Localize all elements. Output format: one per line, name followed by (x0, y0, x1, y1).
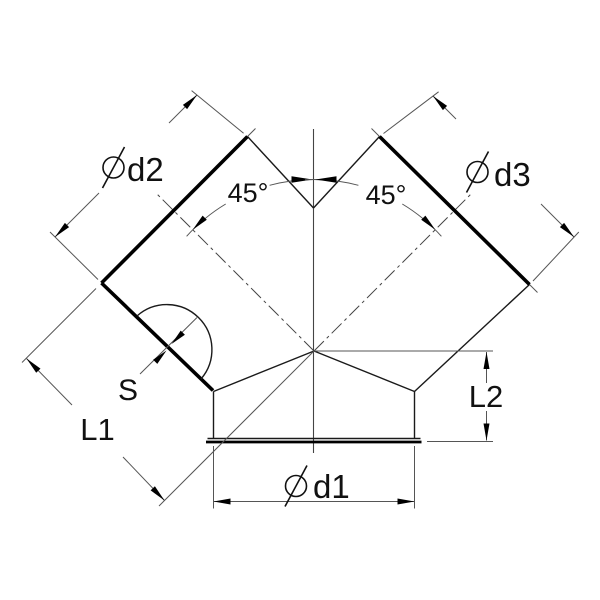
l2-arrow-bottom (484, 424, 490, 441)
l1-extension-top (22, 289, 96, 363)
diameter-slash (285, 466, 307, 507)
fitting-outline-thick (102, 137, 530, 443)
d3-arrow-bottom (560, 223, 574, 237)
technical-drawing-page: d2 d3 45° 45° S (0, 0, 600, 600)
l2-arrow-top (484, 352, 490, 369)
right-edge-overshoot-top (372, 129, 380, 137)
right-angle-arrow-top (316, 176, 337, 182)
dimension-s: S (118, 305, 212, 407)
dimension-angle-left: 45° (187, 176, 323, 236)
right-branch-centerline (314, 193, 472, 351)
dimension-l1: L1 (22, 289, 314, 507)
d2-extension-bottom (50, 232, 98, 280)
right-angle-arrow-bottom (421, 216, 435, 230)
right-angle-label: 45° (366, 180, 407, 210)
right-branch-outer-wall (415, 285, 530, 392)
left-branch-end-edge (102, 137, 248, 284)
right-edge-overshoot-bottom (530, 285, 538, 293)
s-arrow-upper (172, 331, 185, 344)
diameter-slash (467, 152, 489, 193)
left-branch-centerline (156, 193, 314, 351)
dimension-d2: d2 (50, 91, 244, 280)
s-label: S (118, 374, 138, 407)
d1-arrow-left (214, 499, 231, 505)
d3-label: d3 (494, 156, 531, 193)
d2-arrow-bottom (55, 223, 69, 237)
dimension-l2: L2 (314, 351, 503, 442)
left-angle-arrow-bottom (193, 216, 207, 230)
dimension-angle-right: 45° (305, 176, 441, 236)
centerlines (156, 129, 472, 453)
d2-label: d2 (127, 151, 164, 188)
l1-extension-bottom (159, 351, 314, 506)
d2-extension-top (192, 91, 244, 134)
d3-arrow-top (433, 96, 447, 110)
d1-arrow-right (398, 499, 415, 505)
left-transition-edge (214, 351, 315, 392)
l2-label: L2 (469, 379, 503, 414)
right-transition-edge (314, 351, 415, 392)
d2-arrow-top (183, 95, 197, 109)
s-arrow-lower (153, 351, 166, 364)
wye-fitting-drawing: d2 d3 45° 45° S (0, 0, 600, 600)
diameter-symbol-d1 (285, 466, 307, 507)
diameter-symbol-d2 (103, 147, 125, 188)
dimension-d1: d1 (214, 446, 415, 509)
d1-label: d1 (313, 468, 350, 505)
l1-label: L1 (80, 412, 114, 447)
left-edge-overshoot (248, 129, 256, 137)
diameter-symbol-d3 (467, 152, 489, 193)
dimension-d3: d3 (384, 92, 579, 281)
left-angle-label: 45° (228, 178, 269, 208)
d3-extension-bottom (533, 232, 579, 281)
d3-extension-top (384, 92, 439, 134)
diameter-slash (103, 147, 125, 188)
